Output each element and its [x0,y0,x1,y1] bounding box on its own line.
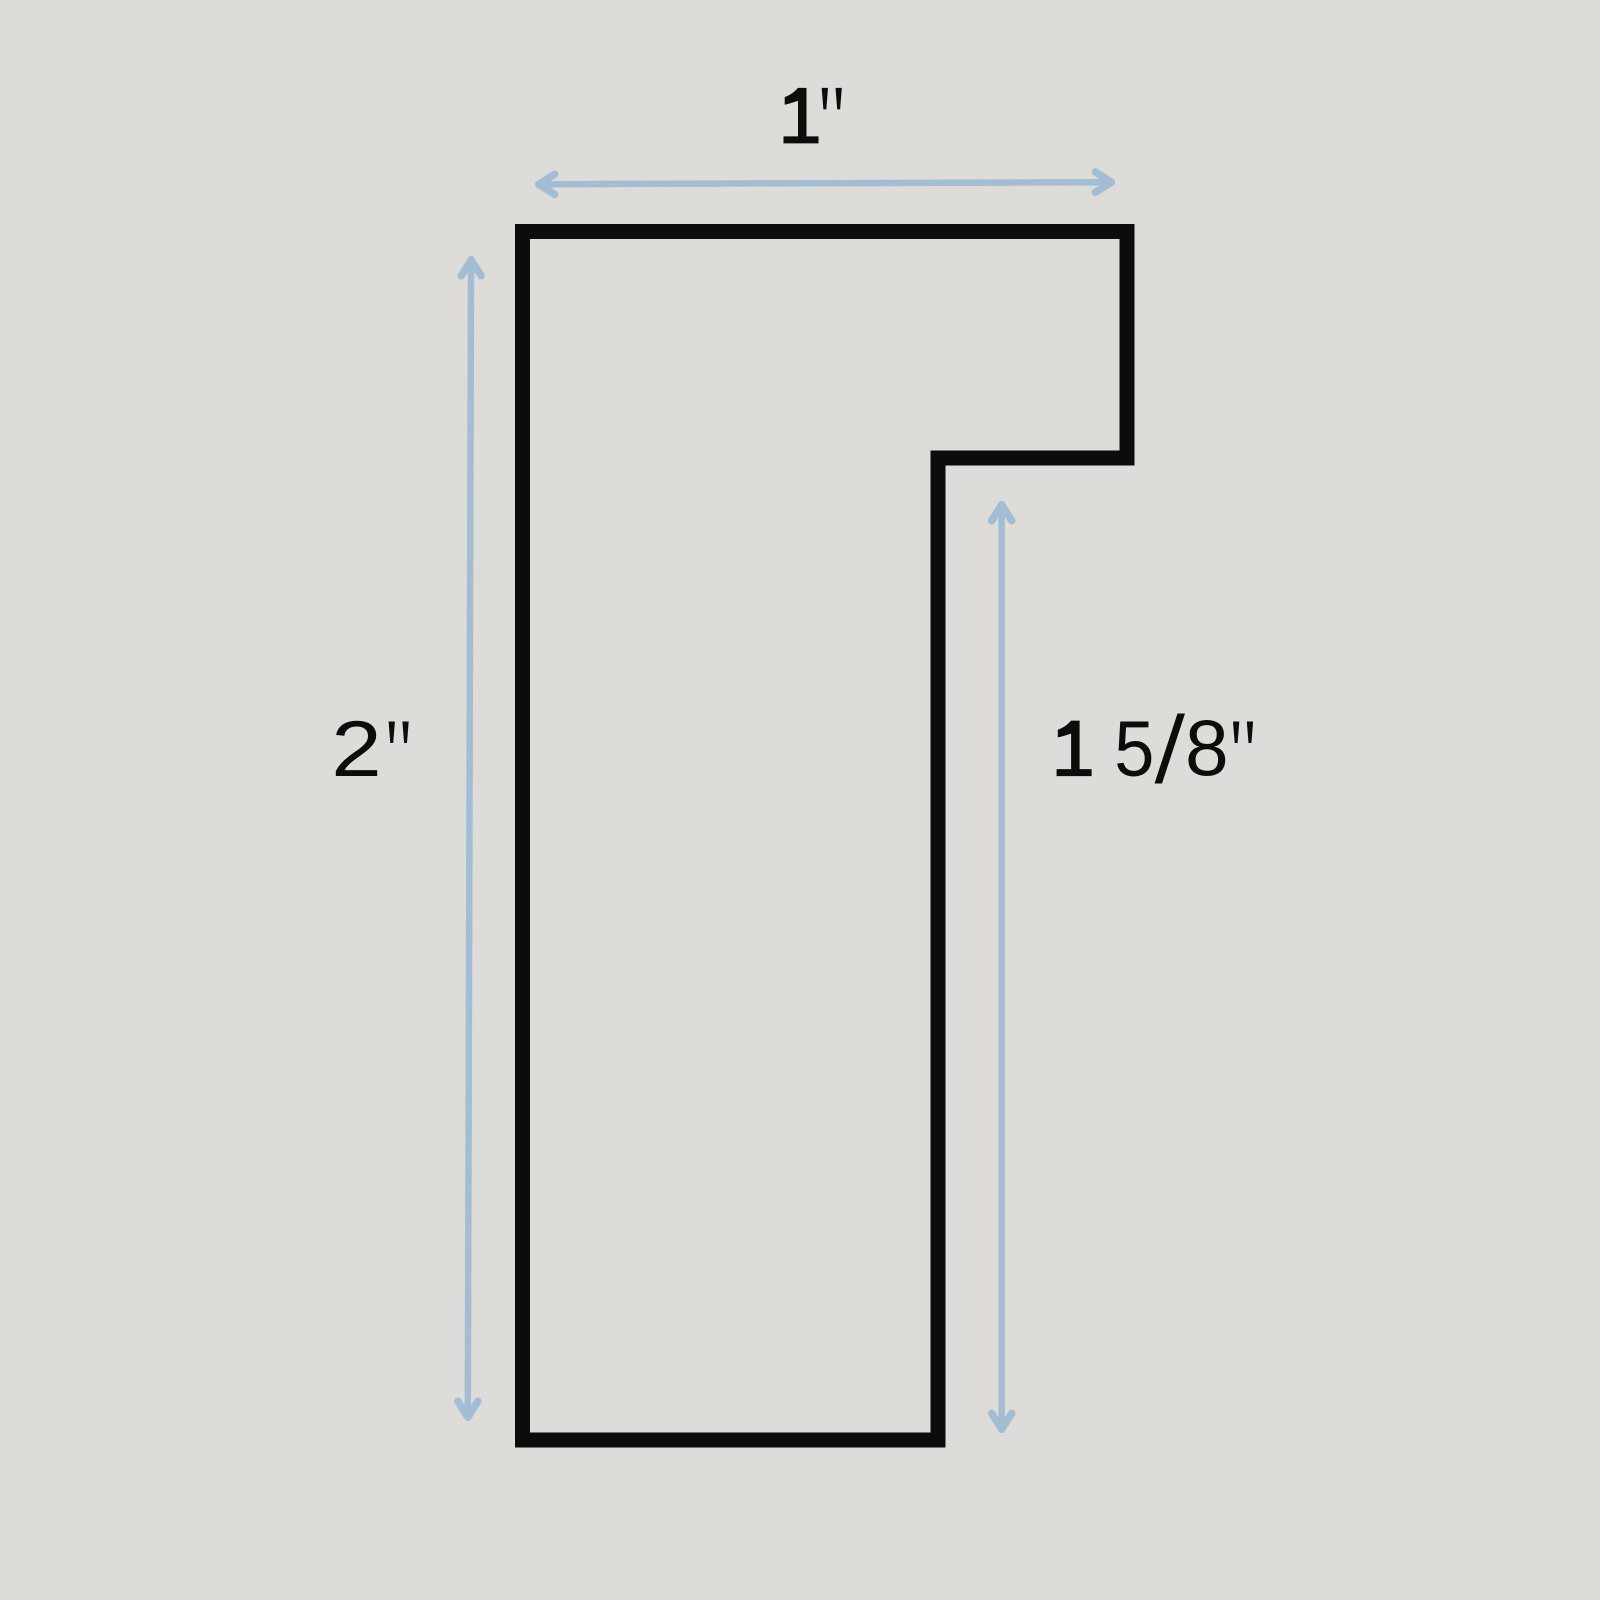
svg-text:2: 2 [331,705,382,793]
svg-text:8: 8 [1185,704,1229,792]
svg-text:5: 5 [1114,705,1154,792]
